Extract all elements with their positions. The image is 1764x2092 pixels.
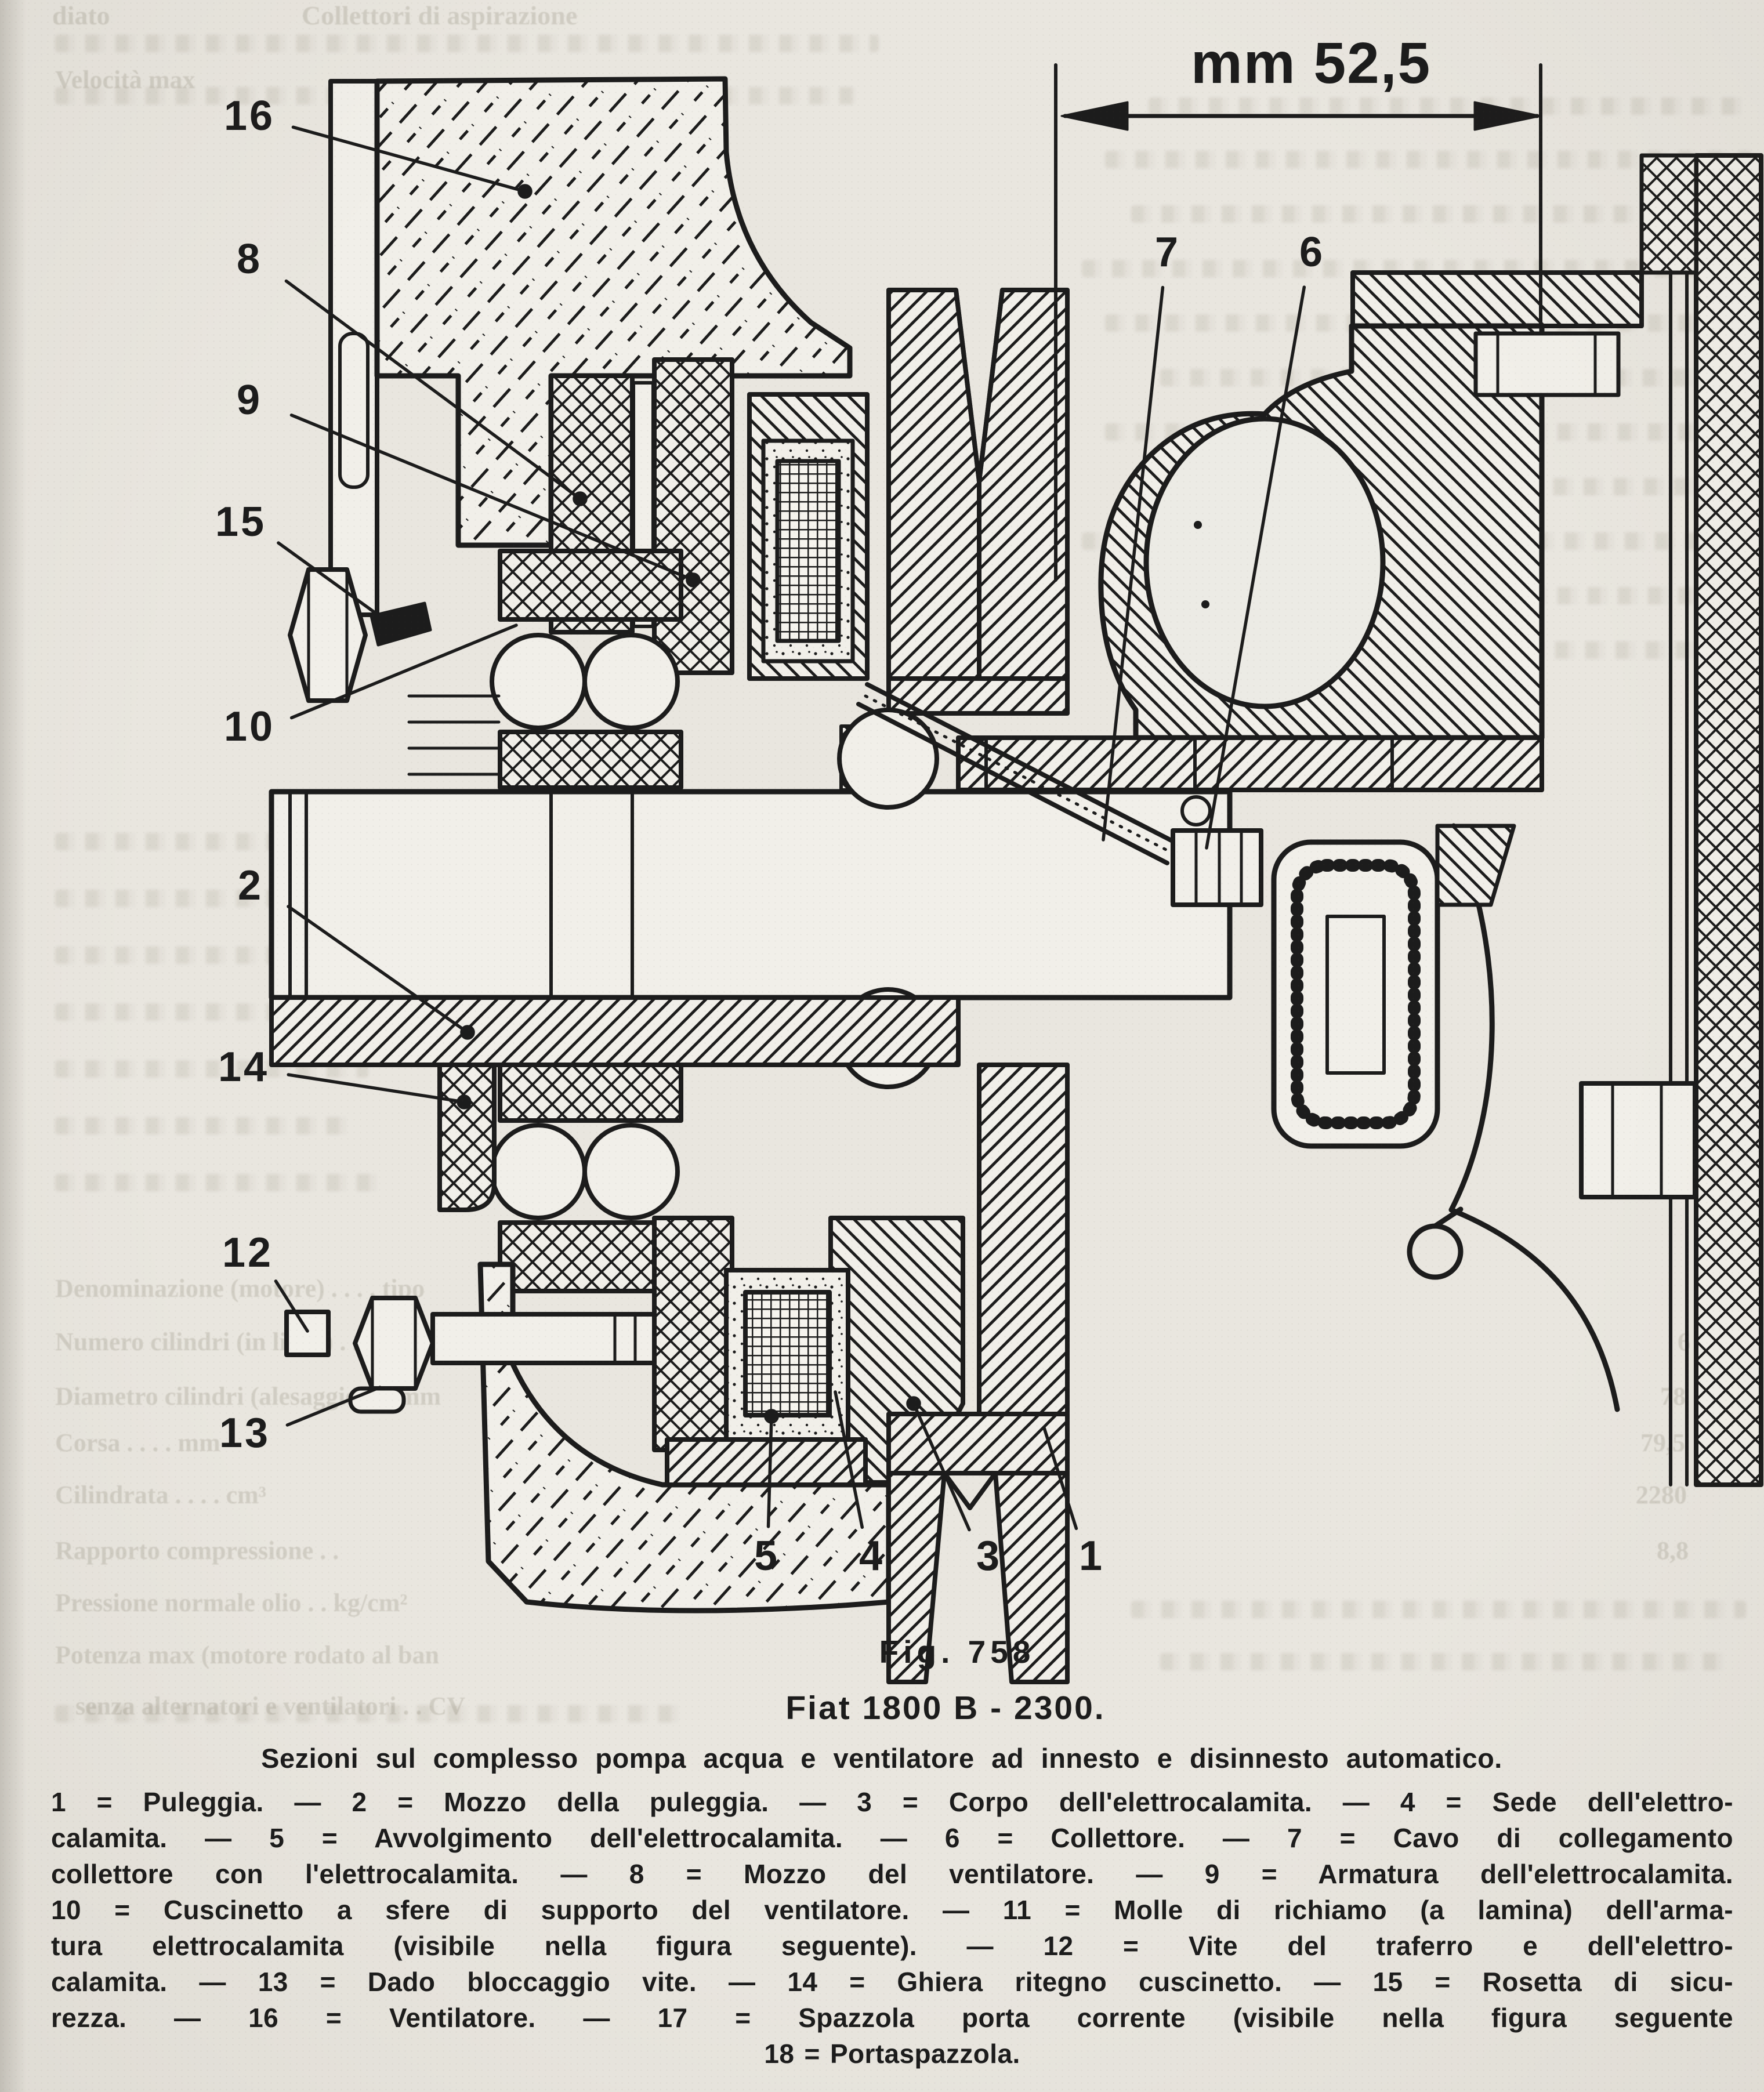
impeller-hub (1437, 826, 1514, 905)
impeller-profile (1451, 1210, 1617, 1409)
legend-line: 1 = Puleggia. — 2 = Mozzo della puleggia… (51, 1784, 1733, 1820)
legend-line: 10 = Cuscinetto a sfere di supporto del … (51, 1892, 1733, 1928)
lock-washer (371, 603, 430, 645)
magnet-bottom-plate (667, 1440, 865, 1485)
dimension-arrow-right (1475, 102, 1541, 130)
scanned-manual-page: diatoCollettori di aspirazioneVelocità m… (0, 0, 1764, 2092)
callout-label-2: 2 (204, 862, 297, 909)
armature-lower (654, 1218, 732, 1450)
callout-label-1: 1 (1045, 1532, 1138, 1580)
gasket-lines (1671, 155, 1687, 1485)
callout-label-5: 5 (720, 1532, 813, 1580)
seal-spring-hook (1410, 1226, 1461, 1277)
pump-mount-band (958, 738, 1542, 790)
legend-line: tura elettrocalamita (visibile nella fig… (51, 1928, 1733, 1964)
legend-line: calamita. — 13 = Dado bloccaggio vite. —… (51, 1964, 1733, 2000)
collector (1173, 831, 1261, 905)
stud-bolt (1581, 1083, 1695, 1197)
callout-label-4: 4 (825, 1532, 918, 1580)
leader-dot-9 (687, 574, 699, 586)
bearing-lower-inner-race (500, 1065, 681, 1121)
leader-dot-2 (462, 1027, 473, 1038)
collector-screw (1182, 797, 1210, 825)
pulley-hub-flange (271, 998, 958, 1065)
spot (1194, 521, 1202, 529)
pump-water-passage (1146, 419, 1383, 706)
pulley-web (979, 1065, 1067, 1414)
pump-bearing-ball (839, 710, 937, 807)
bearing-ball (585, 635, 678, 728)
fan-blade (331, 81, 377, 615)
dimension-arrow-left (1062, 102, 1128, 130)
leader-dot-16 (519, 186, 531, 197)
engine-block-wall (1696, 155, 1761, 1485)
legend-line: calamita. — 5 = Avvolgimento dell'elettr… (51, 1820, 1733, 1856)
figure-number: Fig. 758 (777, 1633, 1137, 1670)
bearing-retaining-nut (440, 1065, 494, 1210)
spot (1201, 600, 1209, 608)
callout-label-8: 8 (203, 235, 296, 283)
pulley-lower-band (889, 1414, 1067, 1473)
leader-dot-3 (908, 1398, 919, 1409)
callout-label-12: 12 (201, 1229, 294, 1277)
legend-line: collettore con l'elettrocalamita. — 8 = … (51, 1856, 1733, 1892)
legend-line: rezza. — 16 = Ventilatore. — 17 = Spazzo… (51, 2000, 1733, 2036)
coil-winding-upper (777, 461, 839, 641)
bearing-ball (492, 635, 585, 728)
coil-winding-lower (745, 1292, 830, 1415)
bearing-ball (492, 1125, 585, 1218)
bearing-ball (585, 1125, 678, 1218)
callout-label-10: 10 (203, 703, 296, 750)
callout-label-15: 15 (194, 498, 287, 546)
wall-corner (1642, 155, 1696, 273)
lock-nut (355, 1298, 433, 1388)
callout-label-13: 13 (198, 1409, 291, 1457)
thread-lines (409, 696, 499, 774)
armature (654, 360, 732, 673)
callout-label-9: 9 (203, 376, 296, 424)
pulley-upper-left-cheek (889, 290, 979, 679)
gap-screw-tip (287, 1312, 328, 1355)
callout-label-6: 6 (1266, 229, 1359, 276)
pump-flange (1353, 273, 1642, 326)
page-gutter-shadow (0, 0, 27, 2092)
dimension-label: mm 52,5 (1137, 30, 1485, 97)
screw-washer (350, 1388, 404, 1412)
leader-dot-5 (766, 1411, 777, 1422)
figure-legend: 1 = Puleggia. — 2 = Mozzo della puleggia… (51, 1784, 1733, 2072)
callout-label-16: 16 (203, 92, 296, 140)
figure-model: Fiat 1800 B - 2300. (650, 1689, 1241, 1727)
leader-dot-8 (574, 493, 586, 505)
seal-core (1327, 916, 1384, 1073)
bearing-upper-inner-race (500, 732, 681, 788)
fan-nut (290, 570, 365, 701)
gap-screw-shank (433, 1314, 658, 1363)
callout-label-14: 14 (197, 1043, 290, 1091)
legend-line: 18 = Portaspazzola. (51, 2036, 1733, 2072)
seal-spring-tail (1435, 1209, 1461, 1226)
leader-dot-14 (458, 1096, 470, 1108)
figure-title: Sezioni sul complesso pompa acqua e vent… (87, 1742, 1676, 1774)
bearing-upper-outer-race (500, 551, 681, 619)
callout-label-7: 7 (1121, 229, 1214, 276)
callout-label-3: 3 (943, 1532, 1035, 1580)
